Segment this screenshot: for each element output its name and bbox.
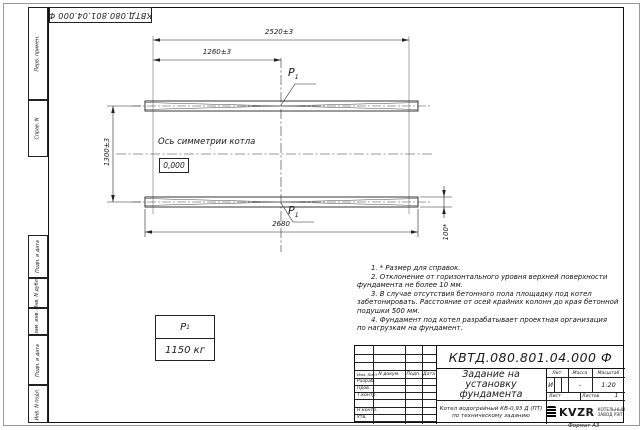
load-subscript: 1 bbox=[186, 324, 190, 331]
row-razrab: Разраб. bbox=[355, 378, 373, 385]
mass-header: Масса bbox=[568, 369, 592, 377]
grid-line bbox=[355, 399, 436, 400]
designation-text: КВТД.080.801.04.000 Ф bbox=[449, 350, 612, 365]
arrow bbox=[153, 38, 160, 42]
arrow bbox=[411, 230, 418, 234]
col-n-dokum: N докум. bbox=[373, 370, 405, 378]
col-data: Дата bbox=[422, 370, 436, 378]
arrow bbox=[442, 190, 446, 197]
arrow bbox=[153, 58, 160, 62]
leader-p1-top bbox=[281, 84, 316, 105]
arrow bbox=[442, 207, 446, 214]
bottom-beam bbox=[132, 197, 431, 207]
row-prov: Пров. bbox=[355, 385, 373, 392]
dim-1260-text: 1260±3 bbox=[187, 48, 247, 56]
load-table-value-cell: 1150 кг bbox=[156, 339, 214, 361]
designation-cell: КВТД.080.801.04.000 Ф bbox=[436, 346, 625, 369]
kvzr-logo-icon bbox=[547, 406, 556, 418]
product-cell: Котел водогрейный КВ-0,93 Д (ПТ) по техн… bbox=[436, 401, 547, 424]
arrow bbox=[111, 195, 115, 202]
kvzr-logo-text: KVZR bbox=[559, 406, 594, 419]
p1-symbol: P bbox=[288, 204, 295, 217]
load-table: P1 1150 кг bbox=[155, 315, 215, 361]
sheet-label: Лист bbox=[547, 392, 580, 400]
top-beam bbox=[132, 101, 431, 111]
dim-2680-text: 2680 bbox=[251, 220, 311, 228]
logo-caption-line: ЗАВОД РЭП bbox=[598, 412, 625, 417]
row-utv: Утв. bbox=[355, 414, 373, 421]
arrow bbox=[145, 230, 152, 234]
p1-subscript: 1 bbox=[295, 211, 299, 219]
note-line: 2. Отклонение от горизонтального уровня … bbox=[357, 273, 621, 282]
dim-1300-text: 1300±3 bbox=[103, 135, 111, 169]
scale-value: 1:20 bbox=[592, 377, 625, 392]
elevation-mark-box: 0,000 bbox=[159, 158, 189, 173]
logo-cell: KVZR КОТЕЛЬНЫЙ ЗАВОД РЭП bbox=[547, 400, 625, 424]
title-block: Изм. Лист N докум. Подп. Дата Разраб. Пр… bbox=[354, 345, 624, 423]
arrow bbox=[274, 58, 281, 62]
load-table-symbol-cell: P1 bbox=[156, 316, 214, 339]
elevation-mark-value: 0,000 bbox=[163, 161, 184, 170]
col-izm-list: Изм. Лист bbox=[355, 370, 373, 378]
scale-header: Масштаб bbox=[592, 369, 625, 377]
col-podp: Подп. bbox=[405, 370, 422, 378]
doc-name-line: Задание на bbox=[462, 370, 520, 380]
lit-value: И bbox=[547, 377, 554, 392]
note-line: по нагрузкам на фундамент. bbox=[357, 324, 621, 333]
arrow bbox=[111, 106, 115, 113]
grid-line bbox=[355, 362, 436, 363]
lit-header: Лит. bbox=[547, 369, 568, 377]
note-line: забетонировать. Расстояние от осей крайн… bbox=[357, 298, 621, 307]
note-line: 1. * Размер для справок. bbox=[357, 264, 621, 273]
arrow bbox=[402, 38, 409, 42]
symmetry-axis-label: Ось симметрии котла bbox=[158, 137, 255, 147]
grid-line bbox=[561, 377, 562, 392]
grid-line bbox=[554, 377, 555, 392]
doc-name-line: фундамента bbox=[460, 390, 523, 400]
dim-100-text: 100* bbox=[442, 218, 450, 246]
p1-label-top: P1 bbox=[288, 66, 299, 81]
row-nkontr: Н.контр. bbox=[355, 407, 373, 414]
grid-line bbox=[355, 421, 436, 422]
note-line: 3. В случае отсутствия бетонного пола пл… bbox=[357, 290, 621, 299]
note-line: фундамента не более 10 мм. bbox=[357, 281, 621, 290]
product-line: Котел водогрейный КВ-0,93 Д (ПТ) bbox=[440, 406, 543, 413]
sheets-value: 1 bbox=[608, 392, 625, 400]
drawing-sheet: Перв. примен. Справ. N Подп. и дата Инв.… bbox=[0, 0, 644, 430]
p1-subscript: 1 bbox=[295, 73, 299, 81]
notes-block: 1. * Размер для справок. 2. Отклонение о… bbox=[357, 264, 621, 333]
grid-line bbox=[355, 354, 436, 355]
p1-symbol: P bbox=[288, 66, 295, 79]
mass-value: - bbox=[568, 377, 592, 392]
doc-name-cell: Задание на установку фундамента bbox=[436, 369, 547, 401]
row-tkontr: Т.контр. bbox=[355, 392, 373, 399]
product-line: по техническому заданию bbox=[452, 413, 530, 420]
format-label: Формат А3 bbox=[568, 423, 599, 429]
note-line: подушки 500 мм. bbox=[357, 307, 621, 316]
note-line: 4. Фундамент под котел разрабатывает про… bbox=[357, 316, 621, 325]
p1-label-bottom: P1 bbox=[288, 204, 299, 219]
doc-name-line: установку bbox=[465, 380, 516, 390]
sheets-label: Листов bbox=[580, 392, 608, 400]
dim-2520-text: 2520±3 bbox=[249, 28, 309, 36]
